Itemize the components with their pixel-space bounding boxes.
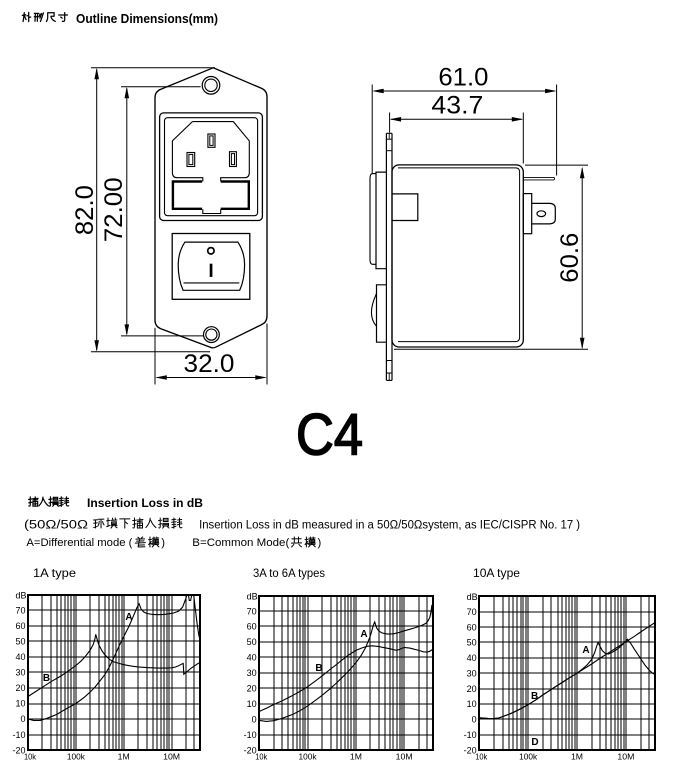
svg-text:0: 0 — [472, 715, 477, 725]
svg-text:40: 40 — [247, 653, 257, 663]
svg-text:dB: dB — [467, 592, 478, 602]
svg-text:20: 20 — [15, 683, 25, 693]
svg-text:10k: 10k — [24, 752, 37, 762]
svg-text:32.0: 32.0 — [184, 350, 235, 378]
svg-text:1M: 1M — [118, 752, 130, 762]
svg-text:1M: 1M — [571, 752, 583, 762]
svg-text:): ) — [318, 537, 322, 549]
svg-text:70: 70 — [247, 606, 257, 616]
svg-text:Insertion Loss in dB measured: Insertion Loss in dB measured in a 50Ω/5… — [199, 519, 580, 531]
svg-text:dB: dB — [15, 591, 26, 601]
svg-text:10M: 10M — [617, 752, 634, 762]
svg-text:10: 10 — [467, 699, 477, 709]
svg-text:100k: 100k — [67, 752, 86, 762]
svg-text:30: 30 — [467, 668, 477, 678]
svg-text:-10: -10 — [464, 730, 477, 740]
svg-text:10k: 10k — [475, 752, 488, 762]
svg-text:60: 60 — [467, 622, 477, 632]
svg-text:0: 0 — [20, 714, 25, 724]
svg-text:1M: 1M — [350, 752, 362, 762]
svg-text:C4: C4 — [296, 403, 363, 468]
svg-text:): ) — [161, 537, 165, 549]
svg-text:72.00: 72.00 — [100, 177, 128, 242]
svg-text:82.0: 82.0 — [71, 185, 99, 235]
svg-text:A=Differential mode (: A=Differential mode ( — [26, 537, 132, 549]
svg-text:50: 50 — [467, 638, 477, 648]
svg-text:100k: 100k — [519, 752, 538, 762]
svg-text:20: 20 — [467, 684, 477, 694]
svg-text:B=Common Mode(: B=Common Mode( — [192, 537, 289, 549]
svg-text:40: 40 — [15, 652, 25, 662]
svg-text:60: 60 — [15, 621, 25, 631]
svg-text:10M: 10M — [396, 752, 413, 762]
svg-text:60: 60 — [247, 622, 257, 632]
svg-text:1A type: 1A type — [33, 568, 76, 580]
svg-text:Outline Dimensions(mm): Outline Dimensions(mm) — [76, 11, 218, 26]
svg-text:A: A — [360, 629, 367, 640]
svg-text:Insertion Loss in dB: Insertion Loss in dB — [87, 496, 203, 510]
svg-text:0: 0 — [252, 714, 257, 724]
svg-text:-10: -10 — [12, 730, 25, 740]
svg-text:61.0: 61.0 — [438, 64, 488, 92]
svg-text:43.7: 43.7 — [431, 92, 483, 120]
svg-text:70: 70 — [467, 607, 477, 617]
svg-text:B: B — [315, 663, 322, 674]
svg-text:10: 10 — [247, 699, 257, 709]
svg-text:10k: 10k — [255, 752, 268, 762]
svg-text:70: 70 — [15, 606, 25, 616]
svg-text:10: 10 — [15, 699, 25, 709]
svg-text:-10: -10 — [244, 730, 257, 740]
svg-text:D: D — [531, 737, 538, 748]
svg-text:(50Ω/50Ω: (50Ω/50Ω — [24, 519, 89, 531]
svg-text:10A type: 10A type — [473, 568, 520, 580]
svg-text:50: 50 — [247, 637, 257, 647]
svg-text:100k: 100k — [299, 752, 318, 762]
svg-text:A: A — [582, 645, 589, 656]
svg-text:30: 30 — [15, 668, 25, 678]
svg-text:30: 30 — [247, 668, 257, 678]
svg-text:dB: dB — [247, 591, 258, 601]
svg-text:B: B — [531, 691, 538, 702]
svg-text:A: A — [125, 612, 132, 623]
svg-text:40: 40 — [467, 653, 477, 663]
svg-text:B: B — [43, 673, 50, 684]
svg-text:3A to 6A types: 3A to 6A types — [253, 568, 325, 580]
svg-text:10M: 10M — [163, 752, 180, 762]
svg-text:20: 20 — [247, 684, 257, 694]
svg-text:60.6: 60.6 — [556, 233, 584, 283]
svg-text:50: 50 — [15, 637, 25, 647]
